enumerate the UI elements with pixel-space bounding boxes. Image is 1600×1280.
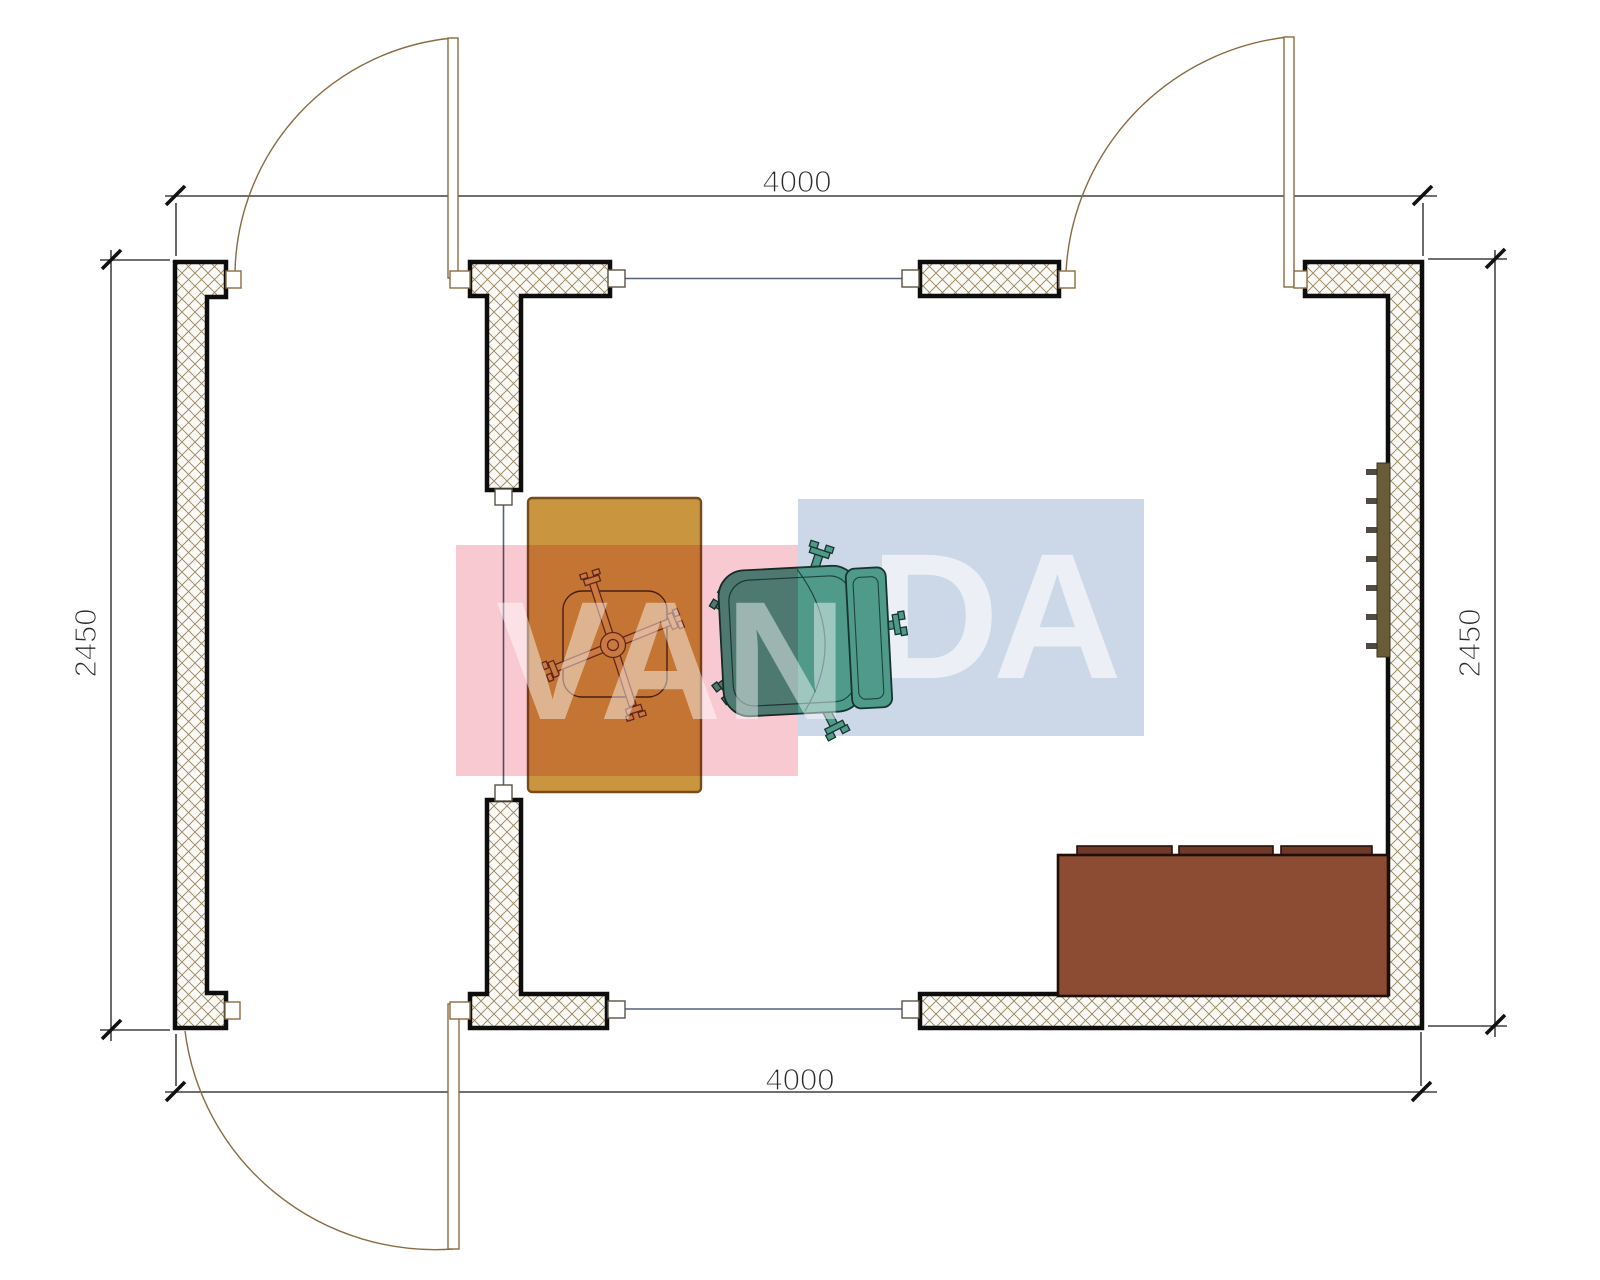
svg-text:2450: 2450 <box>1452 609 1487 678</box>
svg-text:2450: 2450 <box>68 609 103 678</box>
svg-text:VAN: VAN <box>496 566 847 755</box>
svg-text:4000: 4000 <box>766 1062 835 1097</box>
svg-text:DA: DA <box>870 516 1122 716</box>
svg-text:4000: 4000 <box>763 164 832 199</box>
